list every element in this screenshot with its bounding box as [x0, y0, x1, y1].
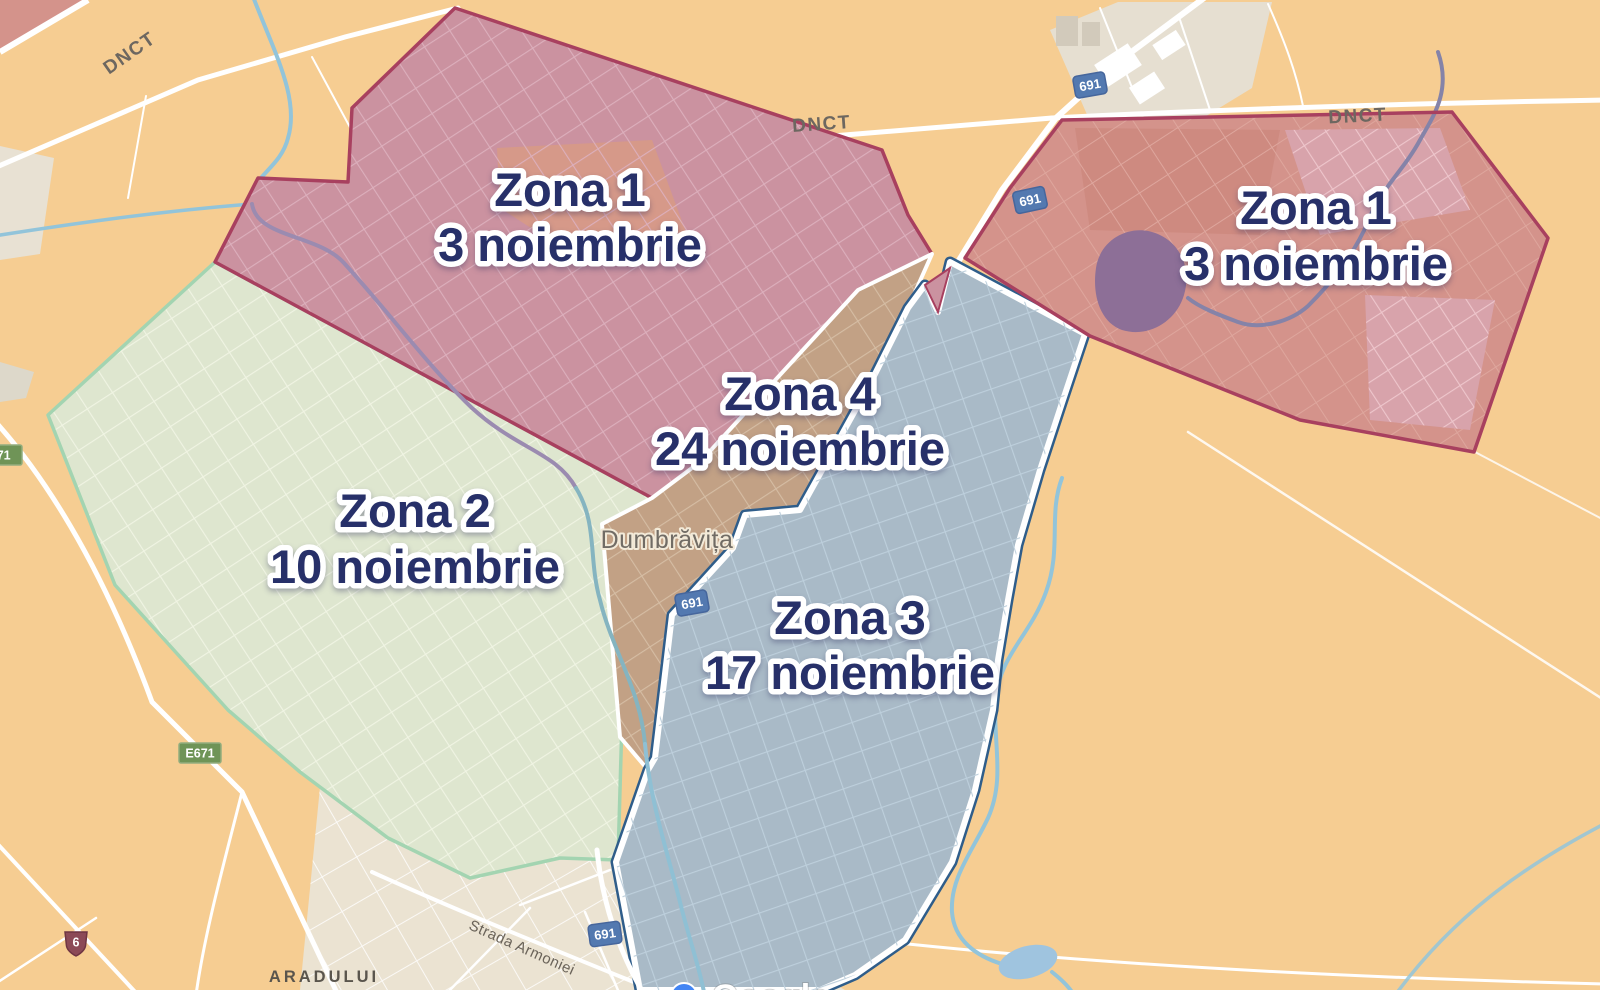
zona4-date: 24 noiembrie	[655, 422, 945, 475]
building	[1056, 16, 1078, 46]
dnct-label-east: DNCT	[1328, 104, 1388, 128]
zona1-right-date: 3 noiembrie	[1184, 237, 1448, 290]
building	[1082, 22, 1100, 46]
zona1-left-name: Zona 1	[494, 163, 645, 216]
district-label-aradului: ARADULUI	[269, 968, 379, 986]
shield-e671-cut: E671	[0, 445, 22, 465]
shield-691-d: 691	[588, 921, 623, 947]
zona2-name: Zona 2	[339, 484, 490, 537]
shield-e671-text: E671	[185, 747, 214, 761]
zona4-name: Zona 4	[724, 367, 875, 420]
zona3-date: 17 noiembrie	[705, 646, 995, 699]
zona1-right-name: Zona 1	[1240, 181, 1391, 234]
google-watermark-text: Google	[712, 978, 829, 990]
dnct-label-center: DNCT	[792, 112, 852, 137]
zona1-left-date: 3 noiembrie	[438, 218, 702, 271]
shield-691-text: 691	[593, 925, 617, 943]
shield-dn6-text: 6	[73, 936, 80, 950]
shield-691-a: 691	[1072, 71, 1107, 98]
zona2-date: 10 noiembrie	[270, 540, 560, 593]
shield-691-c: 691	[674, 589, 709, 616]
map-canvas[interactable]: 691 691 691 691 E671 E671 6 DNCT DNCT	[0, 0, 1600, 990]
shield-e671: E671	[179, 743, 221, 763]
shield-e671-text: E671	[0, 449, 11, 463]
zona3-name: Zona 3	[774, 591, 925, 644]
place-label-dumbravita: Dumbrăvița	[601, 526, 734, 554]
